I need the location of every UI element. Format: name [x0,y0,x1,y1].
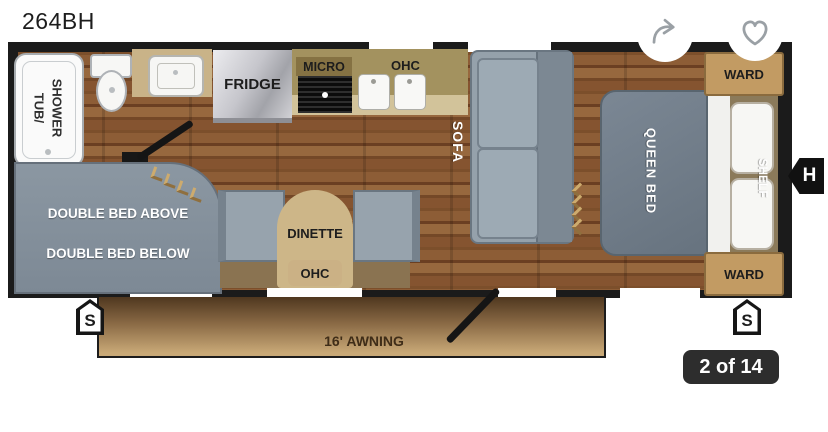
awning-label: 16' AWNING [299,333,429,349]
hitch-letter: H [803,165,817,187]
tub-label: TUB/ [32,93,47,123]
tub-drain [45,149,51,155]
sofa [470,50,574,244]
micro-label: MICRO [303,60,345,74]
sofa-back [536,52,572,242]
dinette-bench-right [353,190,420,262]
dinette-ohc-label: OHC [301,266,330,281]
photo-counter-badge: 2 of 14 [683,350,779,384]
hitch-marker: H [788,158,824,194]
shelf-label: SHELF [756,158,770,197]
page-title: 264BH [22,8,95,35]
heart-icon [733,11,777,55]
kitchen-ohc-label: OHC [391,58,420,73]
sofa-cushion [477,58,539,149]
wardrobe-bottom: WARD [704,252,784,296]
fridge-label: FRIDGE [224,76,281,93]
stabilizer-letter: S [741,311,752,331]
bunk-below-label: DOUBLE BED BELOW [16,246,220,261]
sofa-cushion [477,148,539,239]
sofa-label: SOFA [450,121,466,163]
dinette-bench-left [218,190,285,262]
dinette-ohc-pill: OHC [288,260,342,286]
stabilizer-letter: S [84,311,95,331]
favorite-button[interactable] [727,5,783,61]
shower-label: SHOWER [50,79,65,138]
ohc-cabinet-door [394,74,426,110]
bunk-above-label: DOUBLE BED ABOVE [16,206,220,221]
share-button[interactable] [637,6,693,62]
stabilizer-marker-right: S [733,299,761,335]
awning: 16' AWNING [97,297,606,358]
ward-label: WARD [724,67,764,82]
share-icon [643,12,687,56]
photo-counter-text: 2 of 14 [699,356,762,379]
ward-label: WARD [724,267,764,282]
ohc-cabinet-door [358,74,390,110]
floorplan-image[interactable]: TUB/ SHOWER FRIDGE MICRO OHC [8,42,792,298]
range-cooktop [298,76,352,113]
queen-bed-label: QUEEN BED [644,128,659,214]
dinette-label: DINETTE [277,226,353,241]
bunk-bed: DOUBLE BED ABOVE DOUBLE BED BELOW [14,162,222,294]
window-opening [620,288,700,298]
microwave: MICRO [296,57,352,76]
fridge: FRIDGE [213,50,292,123]
screen: 264BH TUB/ SHOWER FRIDGE [0,0,828,432]
toilet-bowl [96,70,127,112]
bath-sink [148,55,204,97]
